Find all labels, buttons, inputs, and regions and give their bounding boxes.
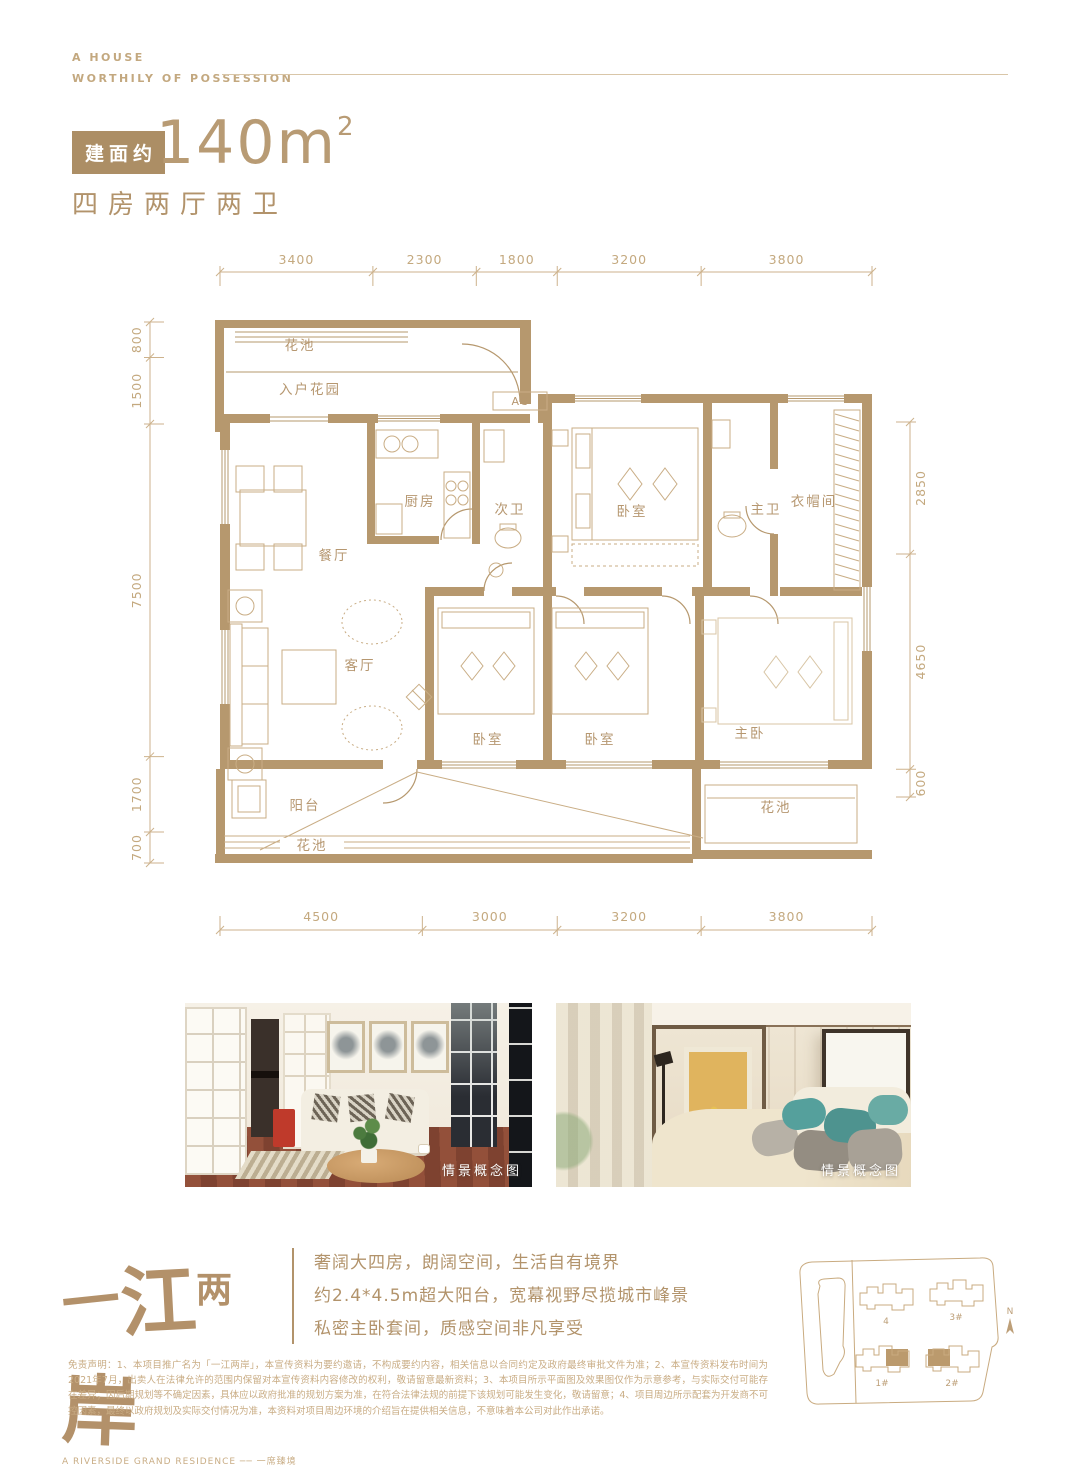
- teal-pillow: [868, 1095, 908, 1125]
- plaid-pillow: [311, 1093, 340, 1122]
- plaid-pillow: [385, 1093, 415, 1123]
- plant: [349, 1117, 385, 1153]
- room-label-master-bath: 主卫: [751, 502, 782, 518]
- dims-left: 800150075001700700: [129, 318, 164, 867]
- master-bed: [702, 618, 852, 724]
- svg-text:700: 700: [129, 834, 144, 861]
- walls: [215, 320, 872, 863]
- logo-char: 一: [57, 1252, 123, 1342]
- svg-text:3800: 3800: [769, 252, 805, 267]
- room-label-master-bedroom: 主卧: [735, 726, 766, 742]
- photo-caption: 情景概念图: [821, 1160, 901, 1179]
- building-label: 4: [883, 1317, 889, 1327]
- coffee-cup: [419, 1145, 429, 1153]
- room-label-bedroom-c: 卧室: [585, 731, 616, 748]
- building-label: 2#: [945, 1379, 958, 1389]
- furniture: [224, 392, 860, 850]
- disclaimer-text: 免责声明：1、本项目推广名为「一江两岸」，本宣传资料为要约邀请，不构成要约内容，…: [68, 1358, 768, 1419]
- picture-frame: [327, 1021, 365, 1073]
- room-label-bedroom-b: 卧室: [473, 731, 504, 748]
- divider: [292, 1248, 294, 1344]
- room-label-flower-right: 花池: [761, 800, 792, 816]
- selling-point: 私密主卧套间，质感空间非凡享受: [314, 1313, 689, 1346]
- tagline-line2: WORTHILY OF POSSESSION: [72, 69, 293, 90]
- photo-bedroom: 情景概念图: [556, 1003, 911, 1187]
- svg-text:1800: 1800: [499, 252, 535, 267]
- site-road: [852, 1260, 856, 1403]
- wood-beam: [652, 1025, 766, 1029]
- room-label-bath2: 次卫: [495, 502, 526, 518]
- svg-text:800: 800: [129, 326, 144, 353]
- dims-bottom: 4500300032003800: [216, 909, 876, 936]
- area-badge: 建面约: [72, 131, 165, 174]
- room-label-cloak: 衣帽间: [791, 494, 838, 510]
- room-label-balcony: 阳台: [290, 798, 321, 814]
- red-cabinet: [273, 1109, 295, 1147]
- building-label: 1#: [875, 1379, 888, 1389]
- svg-text:2300: 2300: [407, 252, 443, 267]
- site-boundary: [800, 1258, 998, 1404]
- area-value: 140m2: [156, 108, 356, 178]
- logo-char: 两: [196, 1261, 232, 1313]
- room-label-living: 客厅: [345, 657, 376, 674]
- picture-frame: [411, 1021, 449, 1073]
- building-4: [860, 1284, 913, 1310]
- curtained-window: [556, 1003, 652, 1187]
- black-window: [451, 1003, 497, 1147]
- svg-text:4500: 4500: [303, 909, 339, 924]
- svg-text:3400: 3400: [279, 252, 315, 267]
- svg-text:1500: 1500: [129, 373, 144, 409]
- north-compass-icon: N: [1006, 1307, 1014, 1334]
- svg-text:600: 600: [913, 770, 928, 797]
- dims-right: 28504650600: [896, 418, 928, 801]
- building-2-highlighted: [926, 1346, 979, 1372]
- building-3: [930, 1280, 983, 1306]
- dims-top: 34002300180032003800: [216, 252, 876, 286]
- room-label-flower-top: 花池: [285, 338, 316, 354]
- building-1-highlighted: [856, 1346, 909, 1372]
- building-label: 3#: [949, 1313, 962, 1323]
- selling-point: 奢阔大四房，朗阔空间，生活自有境界: [314, 1247, 689, 1280]
- room-label-ac: AC: [511, 395, 528, 408]
- door-arcs: [383, 344, 778, 803]
- header-tagline: A HOUSE WORTHILY OF POSSESSION: [72, 48, 293, 90]
- wardrobe-hatch: [835, 414, 859, 581]
- selling-point: 约2.4*4.5m超大阳台，宽幕视野尽揽城市峰景: [314, 1280, 689, 1313]
- brand-logo: 一江两岸 A RIVERSIDE GRAND RESIDENCE ── 一席臻境: [62, 1240, 287, 1465]
- site-pond: [818, 1278, 845, 1376]
- photo-living-room: 情景概念图: [185, 1003, 532, 1187]
- header-rule: [222, 74, 1008, 75]
- svg-text:N: N: [1007, 1307, 1014, 1317]
- svg-text:4650: 4650: [913, 644, 928, 680]
- room-label-dining: 餐厅: [319, 548, 350, 564]
- french-door: [185, 1007, 247, 1175]
- room-label-bedroom-a: 卧室: [617, 503, 648, 520]
- floorplan-drawing: 34002300180032003800 4500300032003800 80…: [120, 242, 960, 957]
- svg-text:3200: 3200: [611, 252, 647, 267]
- svg-text:1700: 1700: [129, 776, 144, 812]
- room-label-entry-garden: 入户花园: [279, 381, 341, 398]
- logo-char: 江: [117, 1238, 199, 1352]
- svg-text:3200: 3200: [611, 909, 647, 924]
- tagline-line1: A HOUSE: [72, 48, 293, 69]
- svg-text:2850: 2850: [913, 470, 928, 506]
- picture-frame: [369, 1021, 407, 1073]
- layout-subtitle: 四房两厅两卫: [72, 184, 288, 221]
- room-label-flower-bottom: 花池: [297, 838, 328, 854]
- room-label-kitchen: 厨房: [405, 494, 436, 510]
- svg-text:3800: 3800: [769, 909, 805, 924]
- svg-text:7500: 7500: [129, 572, 144, 608]
- svg-text:3000: 3000: [472, 909, 508, 924]
- selling-points: 奢阔大四房，朗阔空间，生活自有境界 约2.4*4.5m超大阳台，宽幕视野尽揽城市…: [314, 1247, 689, 1346]
- photo-caption: 情景概念图: [442, 1160, 522, 1179]
- floorplan-poster: A HOUSE WORTHILY OF POSSESSION 建面约 140m2…: [0, 0, 1080, 1465]
- siteplan-map: 4 3# 1# 2# N: [790, 1250, 1030, 1410]
